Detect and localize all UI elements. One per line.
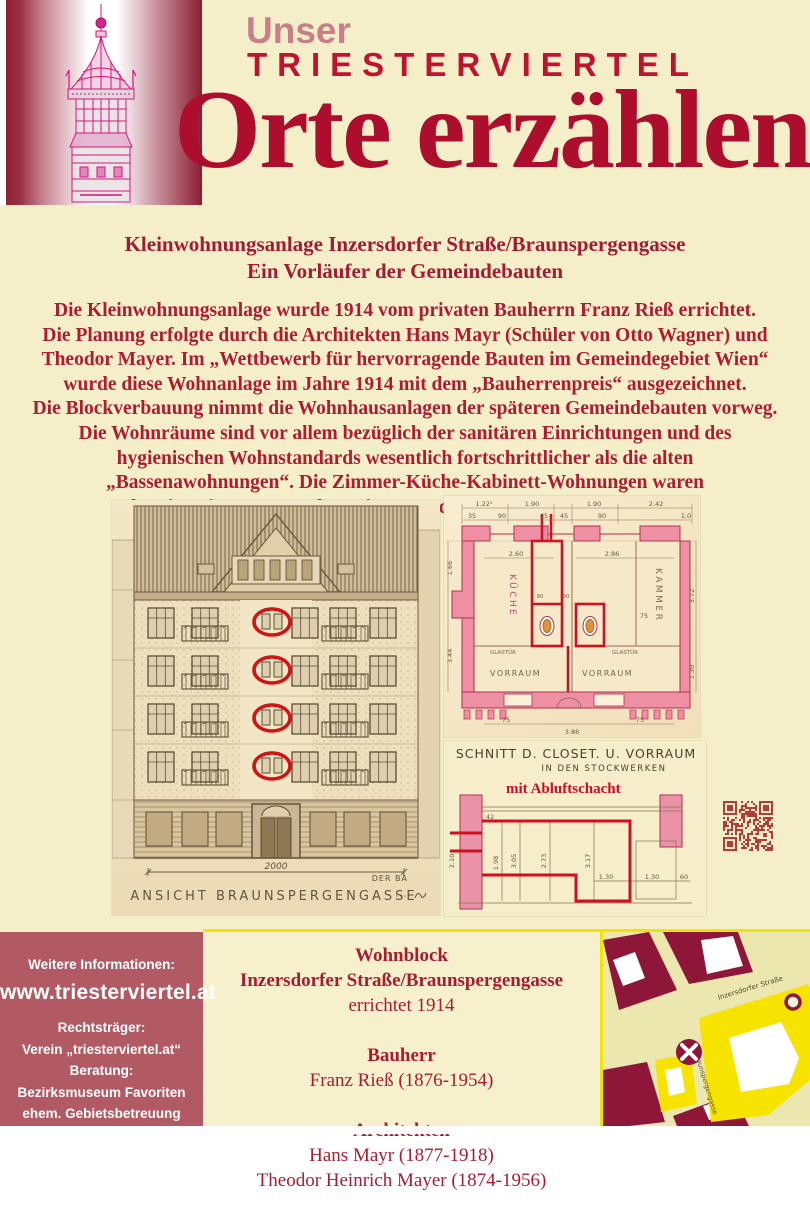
intro-title-line: Kleinwohnungsanlage Inzersdorfer Straße/…: [0, 231, 810, 258]
svg-text:90: 90: [598, 512, 606, 520]
svg-text:3.86: 3.86: [565, 728, 579, 736]
paragraph-line: Theodor Mayer. Im „Wettbewerb für hervor…: [0, 348, 810, 373]
info-line: ehem. Gebietsbetreuung: [0, 1103, 203, 1125]
svg-text:90: 90: [563, 594, 570, 600]
building-details: Wohnblock Inzersdorfer Straße/Braunsperg…: [203, 932, 600, 1218]
svg-text:1.30: 1.30: [645, 873, 659, 881]
section-drawing: SCHNITT D. CLOSET. U. VORRAUM IN DEN STO…: [444, 741, 706, 916]
section-subtitle: IN DEN STOCKWERKEN: [541, 764, 666, 774]
svg-text:2.60: 2.60: [509, 550, 523, 558]
details-group-bauherr: Bauherr Franz Rieß (1876-1954): [203, 1043, 600, 1093]
svg-text:1.66: 1.66: [446, 561, 454, 575]
paragraph-line: hygienischen Wohnstandards wesentlich fo…: [0, 447, 810, 472]
paragraph-line: Die Blockverbauung nimmt die Wohnhausanl…: [0, 397, 810, 422]
svg-text:35: 35: [468, 512, 476, 520]
svg-text:2.86: 2.86: [605, 550, 619, 558]
room-label-vorraum-left: VORRAUM: [490, 669, 541, 678]
elevation-corner-note: DER BA: [372, 874, 408, 883]
door-label-glastuer-left: GLASTÜR: [490, 649, 516, 656]
details-group-wohnblock: Wohnblock Inzersdorfer Straße/Braunsperg…: [203, 943, 600, 1018]
svg-text:1.90: 1.90: [587, 500, 601, 508]
svg-text:75: 75: [636, 716, 644, 724]
info-line: Rechtsträger:: [0, 1017, 203, 1039]
svg-text:1.22⁵: 1.22⁵: [475, 500, 492, 508]
intro-title: Kleinwohnungsanlage Inzersdorfer Straße/…: [0, 231, 810, 285]
svg-text:1.30: 1.30: [599, 873, 613, 881]
tower-panel: [0, 0, 202, 205]
svg-text:1.30: 1.30: [688, 665, 696, 679]
location-map: Inzersdorfer Straße Braunspergengasse: [603, 932, 810, 1126]
paragraph-line: Die Kleinwohnungsanlage wurde 1914 vom p…: [0, 299, 810, 324]
elevation-caption: ANSICHT BRAUNSPERGENGASSE: [130, 889, 417, 904]
svg-text:1.98: 1.98: [492, 856, 500, 870]
section-title: SCHNITT D. CLOSET. U. VORRAUM: [456, 746, 696, 761]
paragraph-line: Die Planung erfolgte durch die Architekt…: [0, 324, 810, 349]
svg-text:75: 75: [640, 612, 648, 620]
section-highlight-label: mit Abluftschacht: [506, 781, 621, 797]
svg-text:3.05: 3.05: [510, 854, 518, 868]
svg-text:42: 42: [486, 813, 494, 821]
map-x-marker: [676, 1039, 702, 1065]
info-line: Bezirksmuseum Favoriten: [0, 1082, 203, 1104]
room-label-kueche: KÜCHE: [507, 574, 518, 618]
paragraph-line: „Bassenawohnungen“. Die Zimmer-Küche-Kab…: [0, 471, 810, 496]
map-ring-marker: [786, 995, 800, 1009]
svg-text:90: 90: [498, 512, 506, 520]
svg-text:3.44: 3.44: [446, 649, 454, 663]
door-label-glastuer-right: GLASTÜR: [612, 649, 638, 656]
svg-text:3.17: 3.17: [584, 854, 592, 868]
water-tower-icon: [36, 2, 166, 204]
elevation-dimension: 2000: [265, 862, 288, 872]
poster-headline: Orte erzählen: [174, 74, 810, 186]
room-label-vorraum-right: VORRAUM: [582, 669, 633, 678]
info-heading: Weitere Informationen:: [0, 957, 203, 972]
intro-title-line: Ein Vorläufer der Gemeindebauten: [0, 258, 810, 285]
svg-text:90: 90: [537, 594, 544, 600]
svg-text:60: 60: [680, 873, 688, 881]
header: Unser TRIESTERVIERTEL Orte erzählen: [0, 0, 810, 205]
floor-plan-drawing: KÜCHE KAMMER VORRAUM VORRAUM GLASTÜR GLA…: [444, 496, 700, 737]
bottom-margin: [0, 1126, 810, 1134]
elevation-drawing: 2000 DER BA ANSICHT BRAUNSPERGENGASSE: [112, 500, 440, 915]
paragraph-line: wurde diese Wohnanlage im Jahre 1914 mit…: [0, 373, 810, 398]
svg-text:45: 45: [560, 512, 568, 520]
intro-paragraph: Die Kleinwohnungsanlage wurde 1914 vom p…: [0, 299, 810, 520]
svg-text:2.10: 2.10: [448, 854, 456, 868]
paragraph-line: Die Wohnräume sind vor allem bezüglich d…: [0, 422, 810, 447]
info-line: Verein „triesterviertel.at“: [0, 1039, 203, 1061]
svg-text:2.73: 2.73: [540, 854, 548, 868]
svg-text:1.90: 1.90: [525, 500, 539, 508]
poster: Unser TRIESTERVIERTEL Orte erzählen Klei…: [0, 0, 810, 1134]
info-box: Weitere Informationen: www.triesterviert…: [0, 932, 203, 1126]
info-line: Beratung:: [0, 1060, 203, 1082]
website-url: www.triesterviertel.at: [0, 981, 203, 1005]
qr-code: [723, 801, 773, 851]
svg-text:1.0: 1.0: [681, 512, 691, 520]
svg-text:2.42: 2.42: [649, 500, 663, 508]
svg-text:75: 75: [502, 716, 510, 724]
footer: Weitere Informationen: www.triesterviert…: [0, 929, 810, 1134]
svg-text:3.72: 3.72: [688, 589, 696, 603]
svg-text:45: 45: [540, 512, 548, 520]
room-label-kammer: KAMMER: [653, 568, 663, 622]
